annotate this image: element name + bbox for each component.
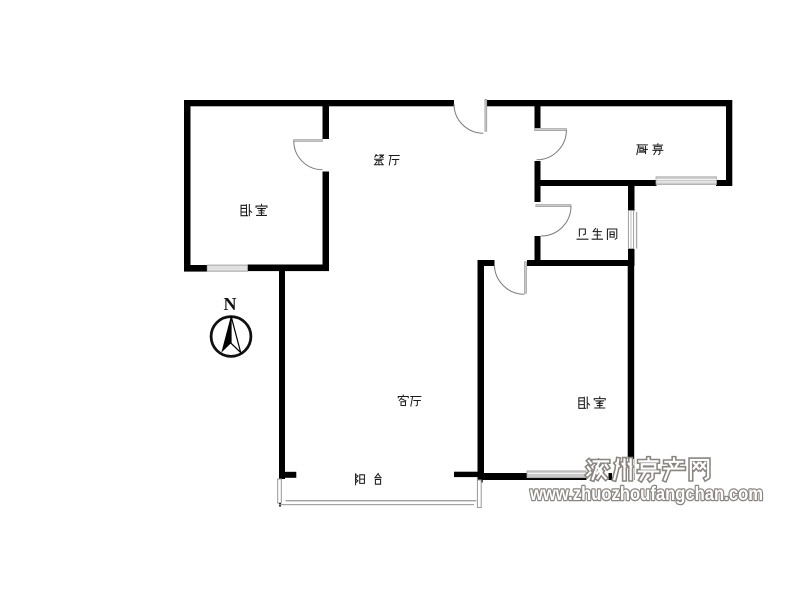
svg-text:N: N: [224, 294, 237, 314]
svg-text:www.zhuozhoufangchan.com: www.zhuozhoufangchan.com: [529, 484, 763, 505]
